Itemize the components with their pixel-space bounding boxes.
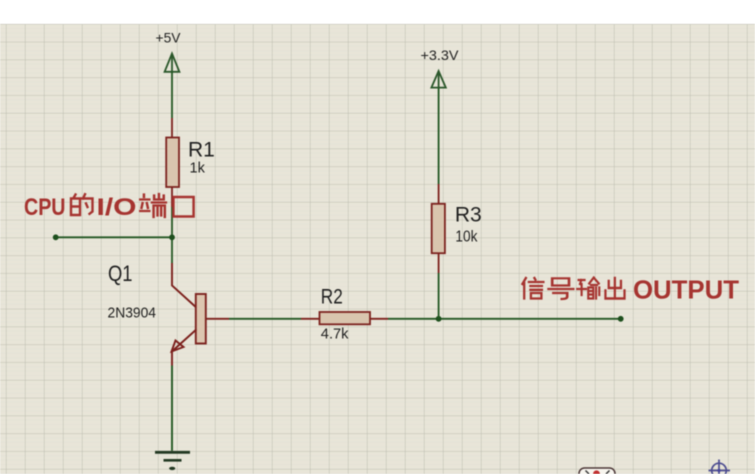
svg-text:+3.3V: +3.3V bbox=[421, 47, 460, 63]
svg-text:+5V: +5V bbox=[156, 30, 181, 45]
svg-text:R2: R2 bbox=[321, 286, 343, 309]
svg-text:1k: 1k bbox=[190, 161, 206, 177]
svg-text:R3: R3 bbox=[455, 204, 482, 227]
svg-text:I/O: I/O bbox=[97, 194, 137, 221]
svg-text:10k: 10k bbox=[455, 228, 477, 245]
svg-text:Q1: Q1 bbox=[108, 261, 133, 286]
svg-text:OUTPUT: OUTPUT bbox=[633, 277, 739, 305]
svg-text:CPU: CPU bbox=[24, 194, 66, 221]
svg-text:2N3904: 2N3904 bbox=[108, 305, 157, 322]
svg-text:4.7k: 4.7k bbox=[321, 326, 349, 343]
svg-text:R1: R1 bbox=[188, 139, 215, 162]
